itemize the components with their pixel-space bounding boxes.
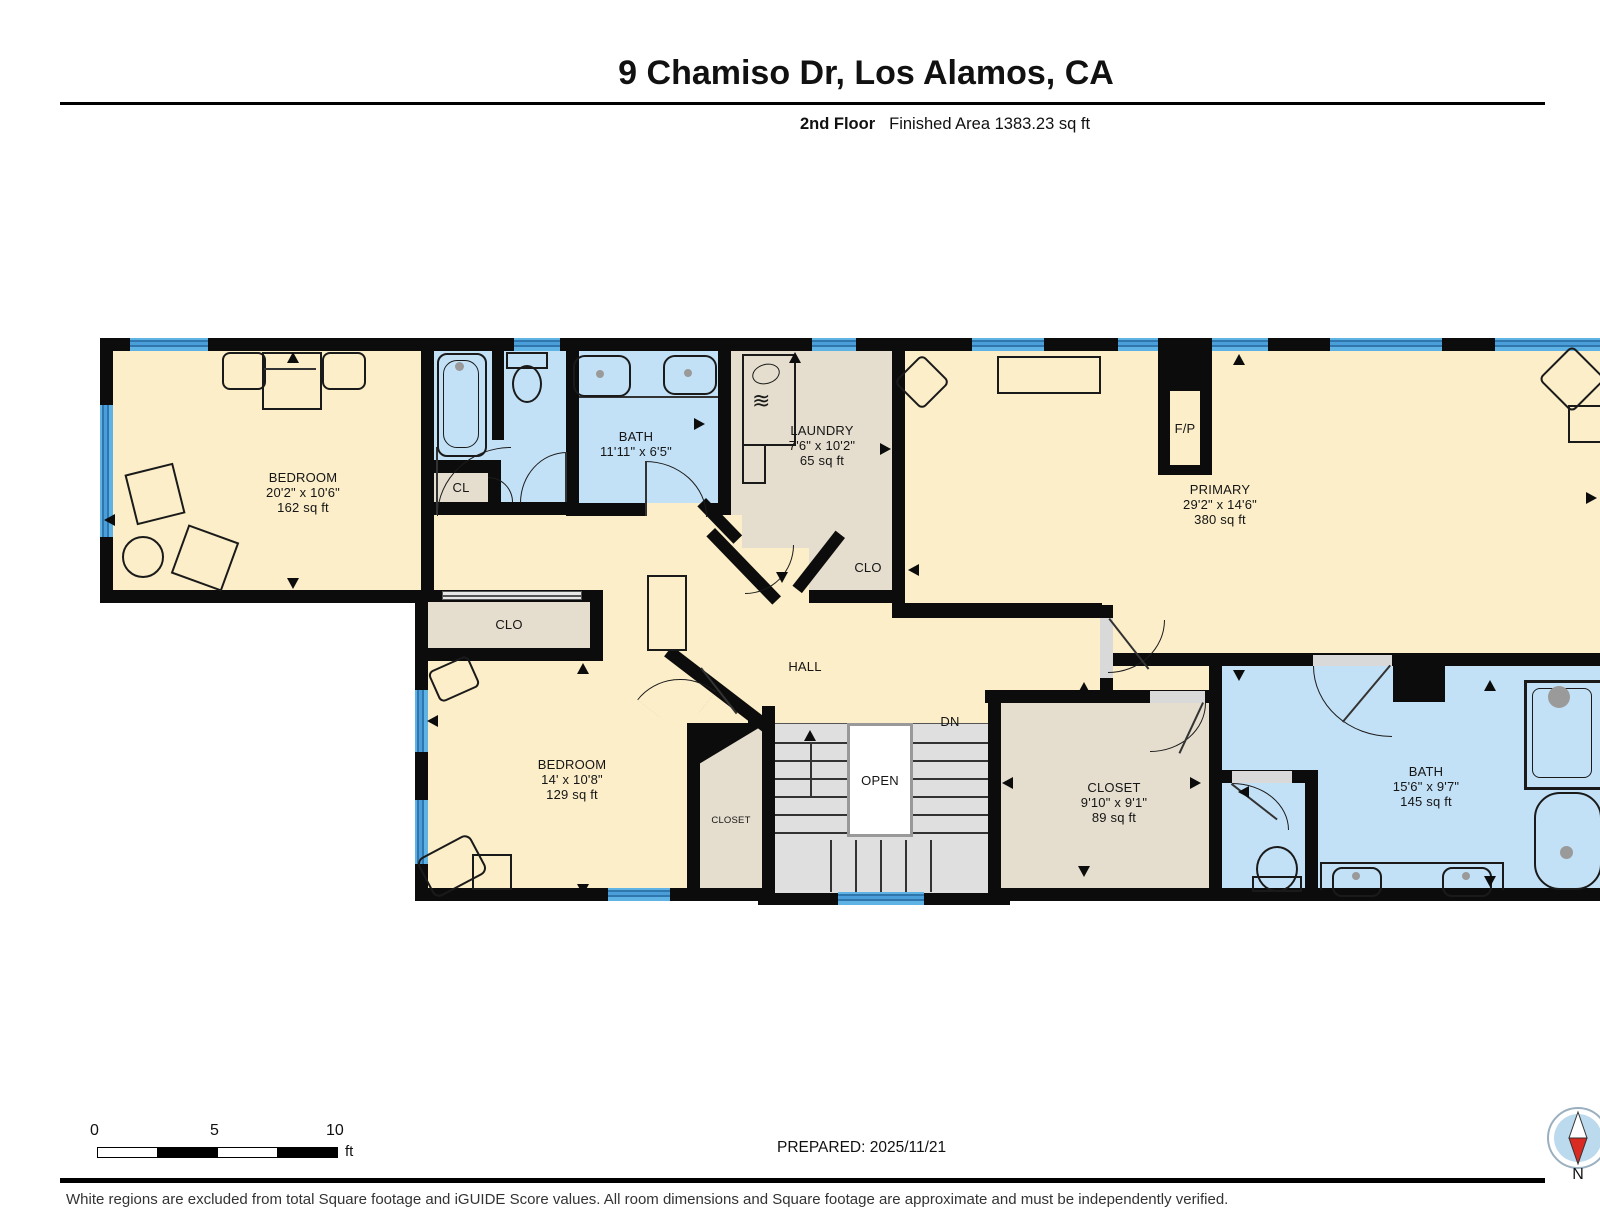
scale-segment — [277, 1147, 338, 1158]
window — [1495, 338, 1600, 351]
stair-tread — [930, 840, 932, 892]
label-bedroom-tl: BEDROOM 20'2" x 10'6" 162 sq ft — [203, 470, 403, 515]
room-dims: 11'11" x 6'5" — [561, 444, 711, 459]
scale-tick-10: 10 — [326, 1122, 352, 1140]
window — [514, 338, 560, 351]
hall-cabinet — [647, 575, 687, 651]
door-gap — [1232, 771, 1292, 783]
footer-rule — [60, 1178, 1545, 1183]
stair-up-line — [810, 742, 812, 797]
label-primary: PRIMARY 29'2" x 14'6" 380 sq ft — [1120, 482, 1320, 527]
wall — [892, 603, 1102, 618]
faucet-dot — [455, 362, 464, 371]
door-leaf — [565, 452, 567, 502]
window — [1118, 338, 1158, 351]
room-area: 380 sq ft — [1120, 512, 1320, 527]
wall — [566, 503, 645, 516]
wall — [1305, 770, 1318, 888]
bathtub — [1534, 792, 1600, 890]
stair-tread — [913, 742, 988, 744]
room-dims: 29'2" x 14'6" — [1120, 497, 1320, 512]
stair-tread — [880, 840, 882, 892]
room-dims: 7'6" x 10'2" — [747, 438, 897, 453]
label-bath-top: BATH 11'11" x 6'5" — [561, 429, 711, 459]
room-name: BEDROOM — [203, 470, 403, 485]
hall-nook — [988, 618, 1100, 690]
stair-tread — [775, 832, 847, 834]
arrow-up-icon — [1078, 682, 1090, 693]
stair-up-arrow-icon — [804, 730, 816, 741]
room-dims: 15'6" x 9'7" — [1326, 779, 1526, 794]
scale-segment — [157, 1147, 218, 1158]
scale-tick-0: 0 — [90, 1122, 110, 1140]
arrow-down-icon — [1078, 866, 1090, 877]
dryer-waves-icon: ≋ — [752, 388, 770, 414]
faucet-dot — [596, 370, 604, 378]
arrow-down-icon — [1484, 876, 1496, 887]
dresser — [997, 356, 1101, 394]
wall — [1393, 653, 1445, 702]
window — [608, 888, 670, 901]
wall — [1209, 653, 1222, 901]
room-area: 162 sq ft — [203, 500, 403, 515]
scale-segment — [217, 1147, 278, 1158]
dresser — [1568, 405, 1600, 443]
wall — [492, 351, 504, 440]
window — [838, 892, 924, 905]
room-name: CLOSET — [1014, 780, 1214, 795]
toilet-tank — [1252, 876, 1302, 892]
arrow-left-icon — [427, 715, 438, 727]
floorplan-page: { "header": { "title": "9 Chamiso Dr, Lo… — [0, 0, 1600, 1200]
door-gap — [1150, 691, 1205, 703]
room-name: LAUNDRY — [747, 423, 897, 438]
arrow-left-icon — [1002, 777, 1013, 789]
nightstand — [322, 352, 366, 390]
door-gap — [1313, 655, 1392, 666]
arrow-up-icon — [287, 352, 299, 363]
scale-unit: ft — [345, 1143, 353, 1160]
room-area: 129 sq ft — [472, 787, 672, 802]
floorplan: ≋ BEDROOM 20'2" x 10'6" 162 sq ft — [0, 0, 1600, 1200]
room-dims: 14' x 10'8" — [472, 772, 672, 787]
wall — [762, 706, 775, 905]
room-area: 145 sq ft — [1326, 794, 1526, 809]
scale-tick-5: 5 — [210, 1122, 230, 1140]
side-table — [472, 854, 512, 890]
window — [972, 338, 1044, 351]
room-name: BATH — [1326, 764, 1526, 779]
stair-tread — [775, 814, 847, 816]
arrow-up-icon — [1484, 680, 1496, 691]
label-cl: CL — [431, 480, 491, 495]
label-closet-small: CLOSET — [696, 813, 766, 828]
door-leaf — [645, 461, 647, 516]
bathtub-inner — [443, 360, 479, 448]
scale-segment — [97, 1147, 158, 1158]
faucet-dot — [1352, 872, 1360, 880]
label-clo-mid: CLO — [459, 617, 559, 632]
label-bedroom-bl: BEDROOM 14' x 10'8" 129 sq ft — [472, 757, 672, 802]
compass-icon — [1546, 1106, 1600, 1170]
wall — [809, 590, 905, 603]
arrow-right-icon — [1586, 492, 1597, 504]
arrow-left-icon — [104, 514, 115, 526]
stair-tread — [913, 832, 988, 834]
arrow-right-icon — [748, 715, 759, 727]
stair-tread — [830, 840, 832, 892]
arrow-up-icon — [577, 663, 589, 674]
room-dims: 9'10" x 9'1" — [1014, 795, 1214, 810]
arrow-down-icon — [1233, 670, 1245, 681]
shower-head — [1548, 686, 1570, 708]
toilet-bowl — [512, 365, 542, 403]
compass — [1546, 1106, 1600, 1170]
label-clo-laundry: CLO — [818, 560, 918, 575]
arrow-down-icon — [776, 572, 788, 583]
arrow-up-icon — [1233, 354, 1245, 365]
arrow-down-icon — [287, 578, 299, 589]
round-table — [122, 536, 164, 578]
sliding-door — [442, 591, 582, 600]
arrow-up-icon — [789, 352, 801, 363]
faucet-dot — [684, 369, 692, 377]
prepared-date: PREPARED: 2025/11/21 — [777, 1139, 946, 1157]
stair-tread — [905, 840, 907, 892]
window — [812, 338, 856, 351]
arrow-down-icon — [577, 884, 589, 895]
room-name: PRIMARY — [1120, 482, 1320, 497]
room-dims: 20'2" x 10'6" — [203, 485, 403, 500]
hall-upper — [434, 515, 742, 590]
label-hall: HALL — [755, 659, 855, 674]
stair-tread — [913, 814, 988, 816]
window — [1330, 338, 1442, 351]
label-closet-r: CLOSET 9'10" x 9'1" 89 sq ft — [1014, 780, 1214, 825]
window — [1212, 338, 1268, 351]
window — [130, 338, 208, 351]
compass-label: N — [1566, 1166, 1590, 1184]
room-name: BATH — [561, 429, 711, 444]
label-laundry: LAUNDRY 7'6" x 10'2" 65 sq ft — [747, 423, 897, 468]
label-fireplace: F/P — [1155, 421, 1215, 436]
room-primary-nook — [1113, 666, 1222, 690]
stair-tread — [855, 840, 857, 892]
stair-tread — [913, 760, 988, 762]
tub-drain — [1560, 846, 1573, 859]
stair-tread — [913, 796, 988, 798]
label-bath-r: BATH 15'6" x 9'7" 145 sq ft — [1326, 764, 1526, 809]
room-area: 65 sq ft — [747, 453, 897, 468]
faucet-dot — [1462, 872, 1470, 880]
label-dn: DN — [900, 714, 1000, 729]
nightstand — [222, 352, 266, 390]
room-primary-lower — [1113, 605, 1600, 653]
bed-line — [264, 368, 316, 370]
label-open: OPEN — [830, 773, 930, 788]
room-name: BEDROOM — [472, 757, 672, 772]
room-area: 89 sq ft — [1014, 810, 1214, 825]
arrow-left-icon — [1238, 786, 1249, 798]
